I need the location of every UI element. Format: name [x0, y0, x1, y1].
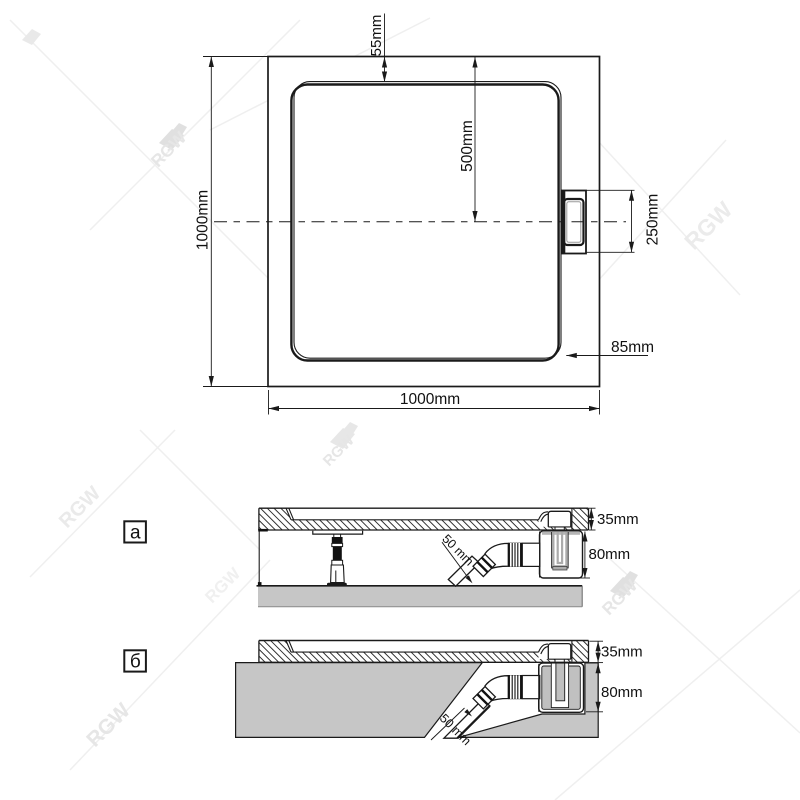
svg-text:б: б — [130, 652, 141, 673]
svg-text:85mm: 85mm — [611, 339, 654, 356]
svg-text:80mm: 80mm — [601, 684, 643, 701]
svg-text:250mm: 250mm — [645, 194, 662, 246]
svg-text:80mm: 80mm — [589, 546, 631, 563]
svg-text:35mm: 35mm — [597, 511, 639, 528]
svg-text:RGW: RGW — [201, 563, 244, 606]
svg-text:500mm: 500mm — [459, 120, 476, 172]
svg-text:35mm: 35mm — [601, 644, 643, 661]
svg-text:а: а — [130, 523, 141, 544]
svg-text:1000mm: 1000mm — [195, 190, 212, 250]
svg-text:RGW: RGW — [82, 699, 135, 752]
svg-text:55mm: 55mm — [368, 15, 385, 57]
svg-text:1000mm: 1000mm — [400, 391, 460, 408]
svg-text:RGW: RGW — [679, 196, 737, 254]
